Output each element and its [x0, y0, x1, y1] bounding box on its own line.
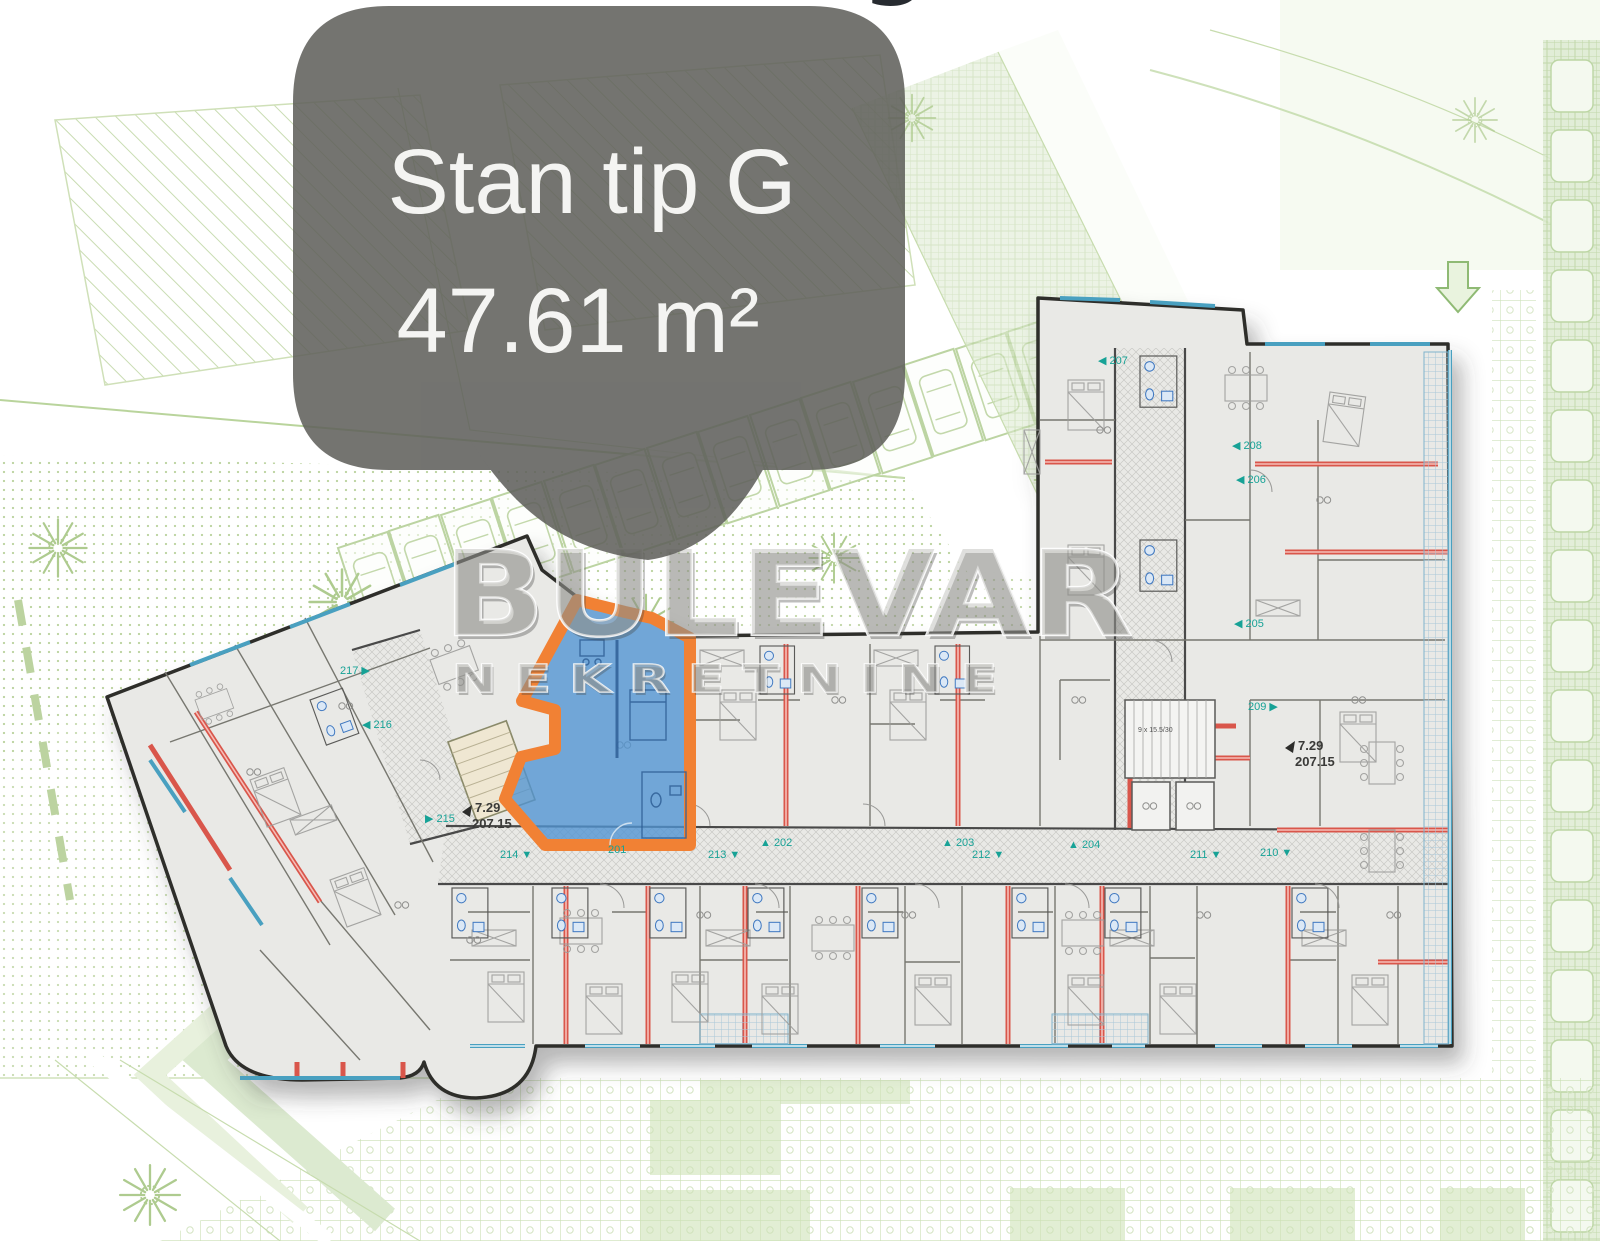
unit-label-204: ▲ 204 — [1068, 839, 1100, 851]
unit-label-216: ◀ 216 — [362, 719, 392, 731]
unit-label-211: 211 ▼ — [1190, 849, 1221, 861]
callout-title: Stan tip G — [387, 131, 796, 233]
unit-label-201: 201 — [608, 844, 626, 856]
balcony-strip-right — [1424, 352, 1448, 1044]
watermark-secondary: N E K R E T N I N E — [452, 657, 997, 701]
unit-label-205: ◀ 205 — [1234, 618, 1264, 630]
unit-label-210: 210 ▼ — [1260, 847, 1292, 859]
unit-label-213: 213 ▼ — [708, 849, 740, 861]
level-height-left: 7.29 — [475, 800, 500, 815]
unit-label-217: 217 ▶ — [340, 665, 370, 677]
level-elevation-left: 207.15 — [472, 816, 512, 831]
unit-label-212: 212 ▼ — [972, 849, 1004, 861]
cropped-heading-letter: g — [862, 0, 928, 8]
balcony-bottom-b — [1052, 1014, 1148, 1044]
stair-note: 9 x 15.5/30 — [1138, 727, 1173, 734]
callout-bubble-body — [293, 6, 905, 470]
unit-label-209: 209 ▶ — [1248, 701, 1278, 713]
unit-label-206: ◀ 206 — [1236, 474, 1266, 486]
unit-label-208: ◀ 208 — [1232, 440, 1262, 452]
unit-label-203: ▲ 203 — [942, 837, 974, 849]
balcony-bottom-a — [700, 1014, 788, 1044]
unit-label-207: ◀ 207 — [1098, 355, 1128, 367]
elevator-b — [1176, 782, 1214, 830]
elevator-a — [1132, 782, 1170, 830]
unit-label-202: ▲ 202 — [760, 837, 792, 849]
level-height-right: 7.29 — [1298, 738, 1323, 753]
unit-label-214: 214 ▼ — [500, 849, 532, 861]
floorplan-canvas: 9 x 15.5/30 — [0, 0, 1600, 1241]
level-elevation-right: 207.15 — [1295, 754, 1335, 769]
callout-area: 47.61 m² — [396, 270, 759, 372]
unit-label-215: ▶ 215 — [425, 813, 455, 825]
real-estate-floorplan-view: 9 x 15.5/30 — [0, 0, 1600, 1241]
site-hedge-modules — [1551, 60, 1593, 1232]
watermark-primary: BULEVAR — [443, 525, 1133, 663]
